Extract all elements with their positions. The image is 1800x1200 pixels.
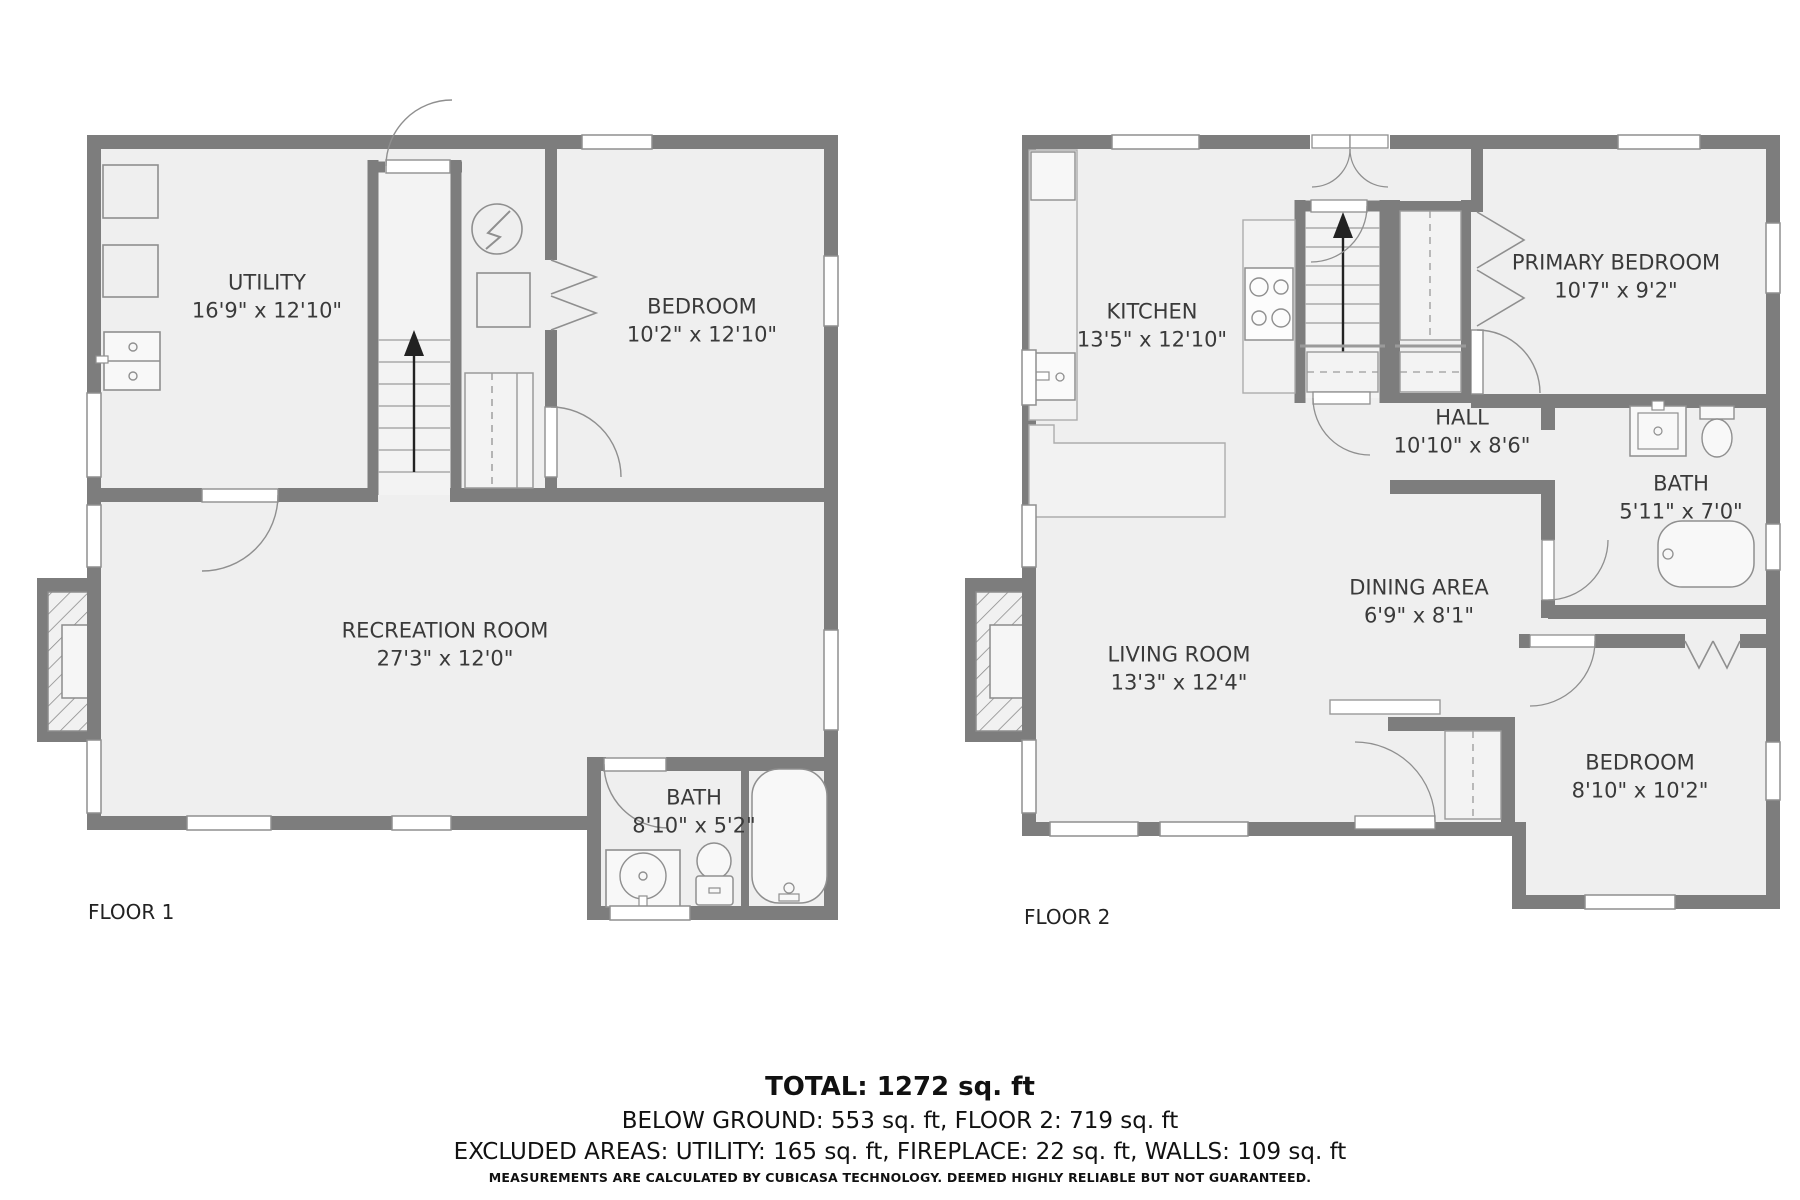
room-label-recreation: RECREATION ROOM 27'3" x 12'0" xyxy=(342,621,549,670)
room-name: PRIMARY BEDROOM xyxy=(1512,251,1720,275)
room-label-bedroom2: BEDROOM 8'10" x 10'2" xyxy=(1572,753,1709,802)
floor1-label: FLOOR 1 xyxy=(88,900,174,924)
closet-icon xyxy=(465,373,533,488)
room-dims: 10'10" x 8'6" xyxy=(1394,436,1531,457)
room-dims: 16'9" x 12'10" xyxy=(192,301,342,322)
room-label-primary-bedroom: PRIMARY BEDROOM 10'7" x 9'2" xyxy=(1512,253,1720,302)
stove-icon xyxy=(1245,268,1293,340)
summary-total: TOTAL: 1272 sq. ft xyxy=(0,1072,1800,1102)
room-name: BEDROOM xyxy=(647,295,757,319)
room-name: BEDROOM xyxy=(1585,751,1695,775)
room-dims: 10'7" x 9'2" xyxy=(1512,281,1720,302)
room-dims: 13'5" x 12'10" xyxy=(1077,330,1227,351)
stairs2-icon xyxy=(1295,200,1390,403)
utility-sink-icon xyxy=(96,332,160,390)
toilet2-icon xyxy=(1700,406,1734,457)
room-dims: 27'3" x 12'0" xyxy=(342,649,549,670)
room-name: RECREATION ROOM xyxy=(342,619,549,643)
room-label-utility: UTILITY 16'9" x 12'10" xyxy=(192,273,342,322)
kitchen-sink-icon xyxy=(1031,353,1075,400)
room-label-bath2: BATH 5'11" x 7'0" xyxy=(1619,474,1742,523)
room-dims: 10'2" x 12'10" xyxy=(627,325,777,346)
summary-excluded: EXCLUDED AREAS: UTILITY: 165 sq. ft, FIR… xyxy=(0,1139,1800,1165)
summary-disclaimer: MEASUREMENTS ARE CALCULATED BY CUBICASA … xyxy=(0,1170,1800,1185)
room-name: DINING AREA xyxy=(1349,576,1489,600)
bathtub-icon xyxy=(752,769,827,903)
room-label-hall: HALL 10'10" x 8'6" xyxy=(1394,408,1531,457)
room-label-dining: DINING AREA 6'9" x 8'1" xyxy=(1349,578,1489,627)
summary-block: TOTAL: 1272 sq. ft BELOW GROUND: 553 sq.… xyxy=(0,1072,1800,1185)
room-name: KITCHEN xyxy=(1106,300,1197,324)
floorplan-canvas xyxy=(0,0,1800,1200)
bathtub2-icon xyxy=(1658,521,1754,587)
bath2-sink-icon xyxy=(1630,401,1686,456)
floorplan-page: UTILITY 16'9" x 12'10" BEDROOM 10'2" x 1… xyxy=(0,0,1800,1200)
room-dims: 13'3" x 12'4" xyxy=(1108,673,1251,694)
room-dims: 8'10" x 5'2" xyxy=(632,816,755,837)
fireplace2-icon xyxy=(965,578,1031,742)
summary-by-floor: BELOW GROUND: 553 sq. ft, FLOOR 2: 719 s… xyxy=(0,1108,1800,1134)
room-dims: 8'10" x 10'2" xyxy=(1572,781,1709,802)
bath1-sink-icon xyxy=(606,850,680,908)
room-dims: 6'9" x 8'1" xyxy=(1349,606,1489,627)
room-name: HALL xyxy=(1435,406,1489,430)
room-name: BATH xyxy=(666,786,722,810)
room-label-kitchen: KITCHEN 13'5" x 12'10" xyxy=(1077,302,1227,351)
floor2-label: FLOOR 2 xyxy=(1024,905,1110,929)
room-dims: 5'11" x 7'0" xyxy=(1619,502,1742,523)
room-label-bath1: BATH 8'10" x 5'2" xyxy=(632,788,755,837)
room-label-bedroom1: BEDROOM 10'2" x 12'10" xyxy=(627,297,777,346)
room-name: UTILITY xyxy=(228,271,306,295)
room-name: LIVING ROOM xyxy=(1108,643,1251,667)
room-label-living: LIVING ROOM 13'3" x 12'4" xyxy=(1108,645,1251,694)
hall-closets-icon xyxy=(1390,200,1471,403)
room-name: BATH xyxy=(1653,472,1709,496)
